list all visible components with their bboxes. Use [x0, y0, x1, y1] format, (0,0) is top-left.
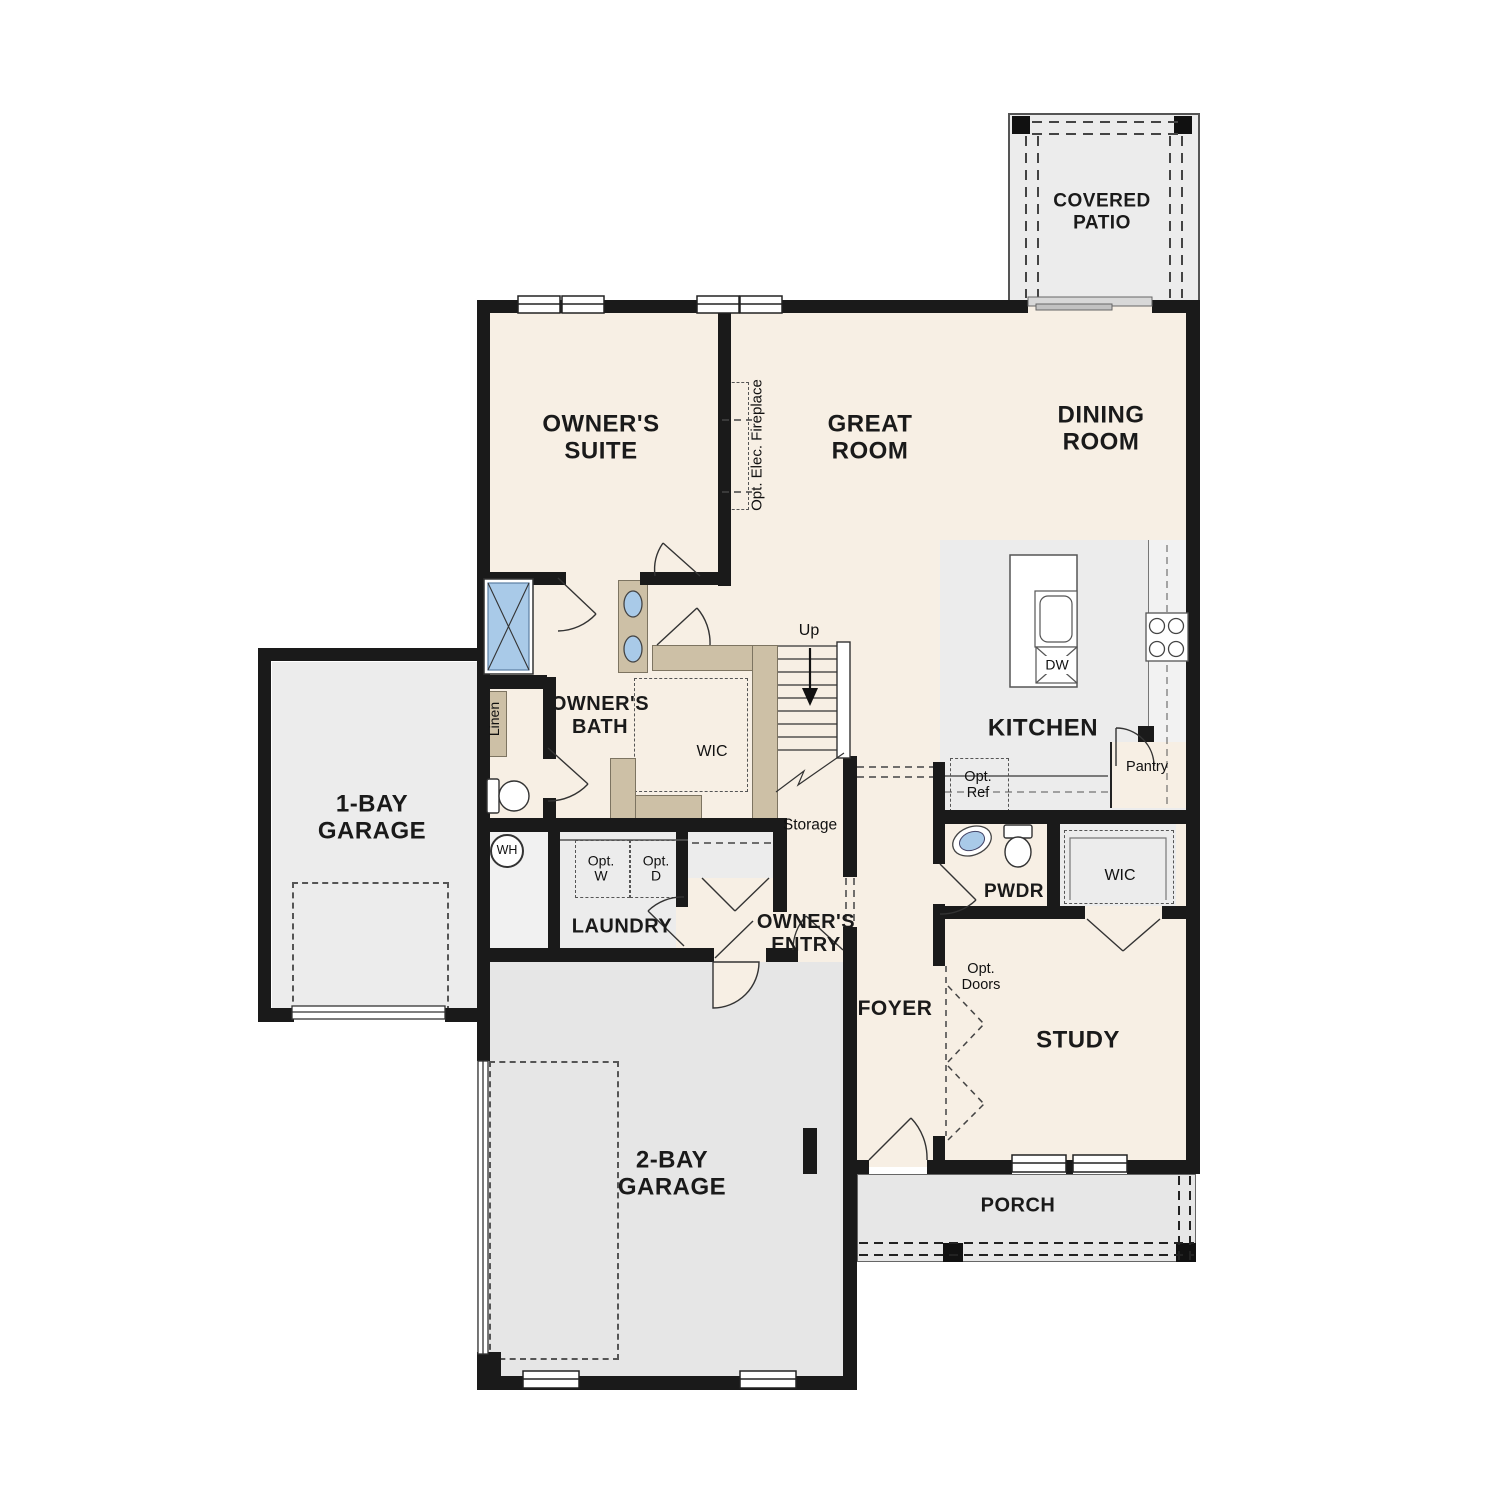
room-label-owners-entry: OWNER'S ENTRY: [751, 911, 861, 957]
toilet-icon: [1004, 825, 1032, 867]
room-label-laundry: LAUNDRY: [542, 916, 702, 939]
room-label-foyer: FOYER: [835, 997, 955, 1021]
porch-dashes: [859, 1176, 1194, 1260]
sink-icon: [948, 821, 996, 862]
room-label-pwdr: PWDR: [964, 881, 1064, 903]
label-opt-elec-fireplace: Opt. Elec. Fireplace: [749, 379, 766, 511]
label-storage: Storage: [783, 816, 837, 833]
label-linen: Linen: [486, 702, 502, 736]
stairs: [776, 642, 850, 792]
room-label-dining-room: DINING ROOM: [1049, 402, 1154, 457]
opening-dashes: [692, 420, 933, 926]
room-label-covered-patio: COVERED PATIO: [1046, 190, 1158, 233]
room-label-owners-suite: OWNER'S SUITE: [539, 411, 664, 466]
label-wic-owners: WIC: [696, 743, 727, 761]
garage-door: [292, 1006, 488, 1354]
floor-plan: COVERED PATIO OWNER'S SUITE GREAT ROOM D…: [0, 0, 1500, 1500]
room-label-owners-bath: OWNER'S BATH: [548, 693, 653, 739]
room-label-kitchen: KITCHEN: [943, 714, 1143, 741]
sink-icon: [624, 591, 642, 662]
room-label-study: STUDY: [998, 1026, 1158, 1053]
fixture-linework: [0, 0, 1500, 1500]
label-wic-study: WIC: [1104, 867, 1135, 885]
room-label-great-room: GREAT ROOM: [818, 411, 923, 466]
label-pantry: Pantry: [1126, 760, 1168, 776]
label-up: Up: [799, 622, 819, 640]
label-dw: DW: [1045, 657, 1068, 672]
room-label-two-bay-garage: 2-BAY GARAGE: [615, 1147, 730, 1202]
shower-icon: [484, 579, 533, 674]
cooktop-icon: [1146, 613, 1188, 661]
patio-slider-door: [1028, 297, 1152, 310]
room-label-one-bay-garage: 1-BAY GARAGE: [315, 791, 430, 846]
label-opt-w: Opt. W: [582, 854, 620, 885]
label-opt-d: Opt. D: [637, 854, 675, 885]
label-opt-doors: Opt. Doors: [956, 962, 1006, 994]
label-opt-ref: Opt. Ref: [956, 770, 1000, 802]
toilet-icon: [487, 779, 529, 813]
stairs-direction-arrow: [802, 648, 818, 706]
label-wh: WH: [497, 844, 518, 858]
room-label-porch: PORCH: [958, 1195, 1078, 1218]
